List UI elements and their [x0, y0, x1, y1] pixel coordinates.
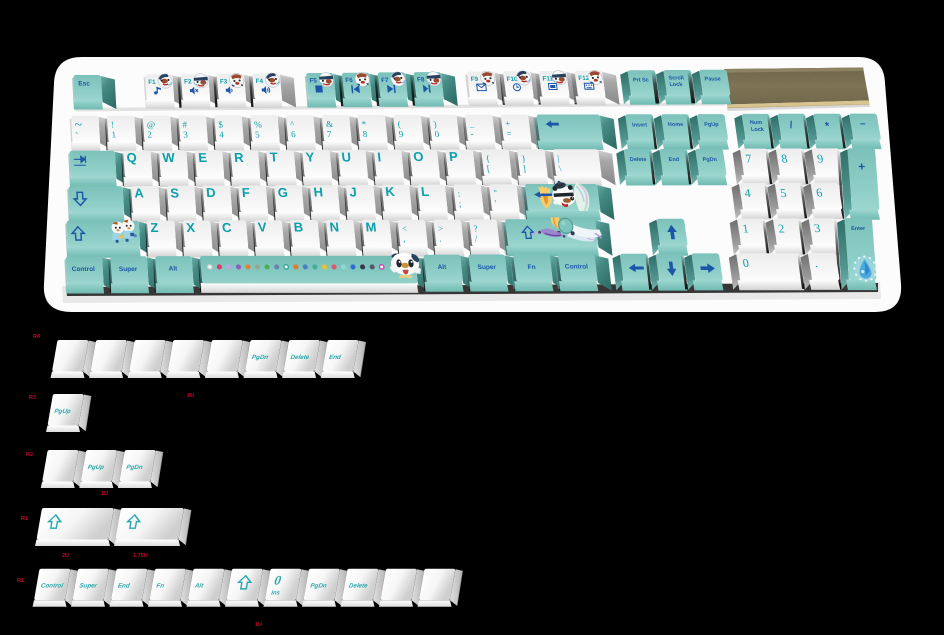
svg-text:F1: F1: [148, 79, 156, 86]
svg-text:Home: Home: [668, 122, 684, 128]
svg-text:PgUp: PgUp: [54, 408, 72, 415]
svg-text:F5: F5: [309, 78, 318, 85]
svg-text:`: `: [75, 131, 79, 143]
svg-text:PgDn: PgDn: [310, 583, 328, 590]
svg-text:PgDn: PgDn: [126, 464, 144, 471]
svg-text:&: &: [325, 119, 333, 129]
svg-text:C: C: [221, 220, 232, 235]
svg-text:Super: Super: [119, 266, 138, 273]
svg-text:F2: F2: [184, 79, 192, 86]
svg-text:F8: F8: [417, 77, 426, 84]
svg-text:Fn: Fn: [527, 264, 536, 271]
svg-text:Delete: Delete: [348, 583, 368, 590]
svg-text:Lock: Lock: [751, 127, 766, 133]
svg-text:X: X: [186, 220, 196, 235]
svg-text:F9: F9: [470, 76, 479, 83]
svg-text:S: S: [170, 185, 180, 200]
svg-text:G: G: [277, 185, 288, 200]
svg-text:F7: F7: [381, 77, 390, 84]
svg-text:1U: 1U: [255, 622, 262, 628]
svg-text:2: 2: [147, 130, 152, 140]
svg-text:Super: Super: [477, 264, 497, 271]
svg-text:Scroll: Scroll: [668, 76, 685, 82]
svg-text:Y: Y: [305, 150, 315, 165]
svg-text:End: End: [329, 354, 342, 361]
svg-text:N: N: [329, 219, 340, 234]
svg-text:W: W: [162, 150, 176, 165]
svg-text:B: B: [293, 220, 304, 235]
svg-text:PgDn: PgDn: [251, 354, 269, 361]
svg-text:@: @: [146, 120, 155, 130]
svg-text:Delete: Delete: [629, 157, 646, 163]
svg-text:R2: R2: [26, 452, 33, 458]
svg-text:Insert: Insert: [632, 122, 648, 128]
svg-text:U: U: [341, 149, 352, 164]
svg-text:T: T: [269, 150, 278, 165]
svg-text:2U: 2U: [62, 553, 69, 559]
svg-text:L: L: [420, 184, 430, 199]
svg-text:Lock: Lock: [669, 82, 684, 88]
svg-text:1U: 1U: [101, 491, 108, 497]
svg-text:O: O: [412, 149, 424, 164]
svg-text:F3: F3: [220, 78, 228, 85]
svg-text:1: 1: [111, 130, 116, 140]
svg-text:E: E: [198, 150, 208, 165]
svg-text:Ins: Ins: [271, 591, 281, 597]
svg-text:Z: Z: [150, 220, 159, 235]
svg-text:Control: Control: [40, 583, 63, 590]
svg-text:Control: Control: [72, 266, 96, 273]
svg-text:%: %: [254, 119, 263, 129]
svg-text:R: R: [233, 150, 244, 165]
svg-text:J: J: [349, 184, 358, 199]
svg-text:M: M: [365, 219, 377, 234]
svg-text:1.75U: 1.75U: [133, 553, 148, 559]
svg-text:F4: F4: [255, 78, 263, 85]
svg-text:Delete: Delete: [290, 354, 310, 361]
svg-text:V: V: [257, 220, 267, 235]
svg-text:A: A: [134, 186, 145, 201]
svg-text:Enter: Enter: [851, 226, 866, 232]
svg-text:Alt: Alt: [168, 266, 178, 273]
svg-text:End: End: [668, 157, 679, 163]
svg-text:R4: R4: [33, 334, 41, 340]
svg-text:1U: 1U: [187, 393, 194, 399]
svg-text:<: <: [401, 224, 407, 234]
svg-text:Q: Q: [126, 150, 137, 165]
svg-text:PgDn: PgDn: [702, 157, 718, 163]
svg-text:R3: R3: [29, 395, 36, 401]
svg-text:Fn: Fn: [156, 583, 165, 590]
svg-text:F6: F6: [345, 77, 354, 84]
svg-text:F: F: [241, 185, 250, 200]
svg-text:PgUp: PgUp: [704, 122, 720, 128]
svg-text:PgUp: PgUp: [87, 464, 105, 471]
svg-text:Super: Super: [79, 583, 98, 590]
svg-text:Esc: Esc: [78, 81, 90, 88]
svg-text:Alt: Alt: [437, 264, 447, 271]
svg-text:Prt Sc: Prt Sc: [633, 77, 650, 83]
svg-text:End: End: [117, 583, 130, 590]
svg-text:R1: R1: [17, 578, 24, 584]
svg-text:+: +: [858, 159, 866, 173]
svg-text:Num: Num: [750, 120, 763, 126]
svg-text:H: H: [313, 185, 324, 200]
svg-text:Pause: Pause: [704, 77, 721, 83]
svg-text:D: D: [206, 185, 217, 200]
svg-text:Control: Control: [564, 264, 588, 271]
svg-text:R1: R1: [21, 516, 28, 522]
